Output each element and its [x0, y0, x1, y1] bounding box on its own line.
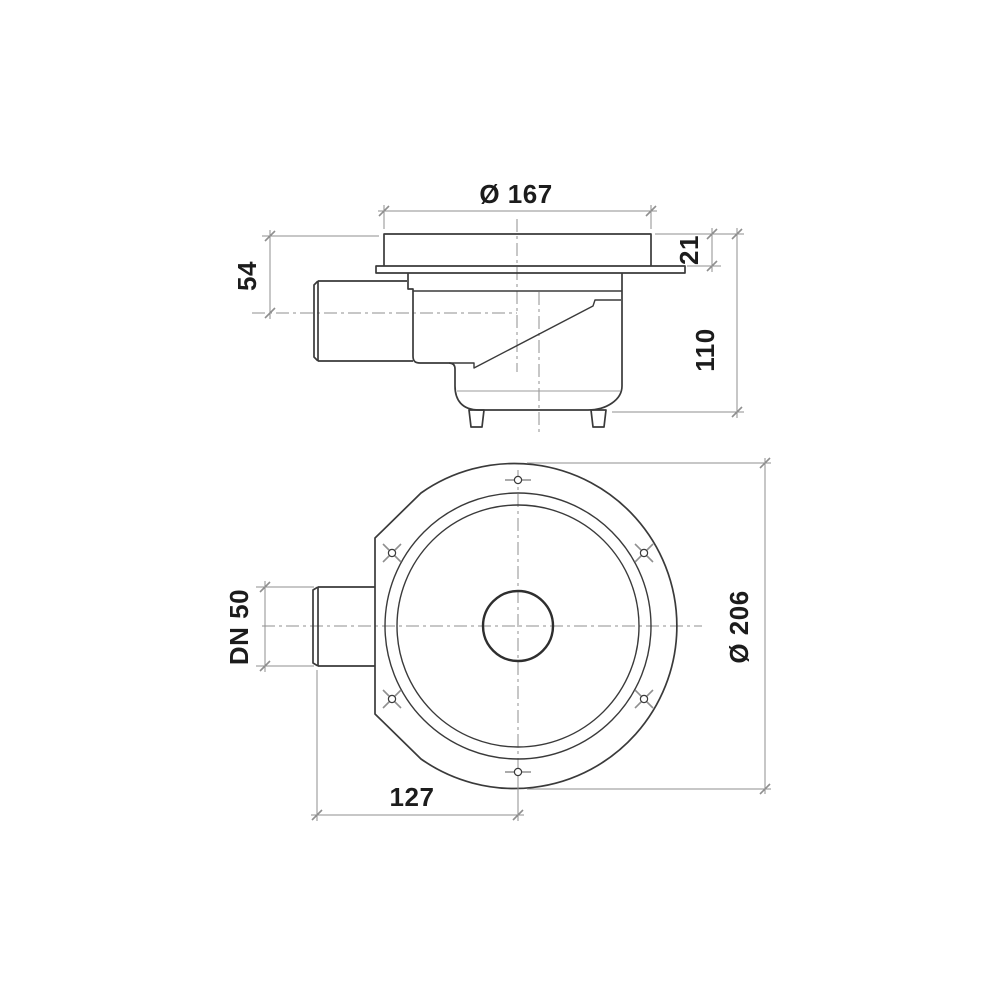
bolt-hole-lower-left [388, 695, 395, 702]
dim-label-top-diameter: Ø 167 [479, 179, 552, 209]
bolt-hole-bottom [514, 768, 521, 775]
bolt-hole-lower-right [640, 695, 647, 702]
dim-inlet-axis-depth: 54 [232, 230, 379, 319]
body-outline [408, 273, 622, 410]
funnel-slope-line [449, 300, 621, 368]
pipe-stub-side [314, 281, 413, 361]
dim-label-total-height: 110 [690, 328, 720, 371]
dim-label-grate-height: 21 [674, 235, 704, 265]
bolt-hole-top [514, 476, 521, 483]
plan-view: DN 50 Ø 206 127 [224, 458, 771, 821]
foot-left [469, 410, 484, 427]
dim-label-inlet-axis-depth: 54 [232, 261, 262, 291]
flange-plate [376, 266, 685, 273]
technical-drawing-canvas: Ø 167 21 110 54 [0, 0, 1000, 1000]
bolt-hole-upper-right [640, 549, 647, 556]
bolt-hole-upper-left [388, 549, 395, 556]
drawing-svg: Ø 167 21 110 54 [0, 0, 1000, 1000]
dim-label-outlet-to-center: 127 [390, 782, 435, 812]
dim-label-outlet-nominal: DN 50 [224, 589, 254, 665]
side-view: Ø 167 21 110 54 [232, 179, 744, 433]
foot-right [591, 410, 606, 427]
dim-label-flange-diameter: Ø 206 [724, 590, 754, 663]
